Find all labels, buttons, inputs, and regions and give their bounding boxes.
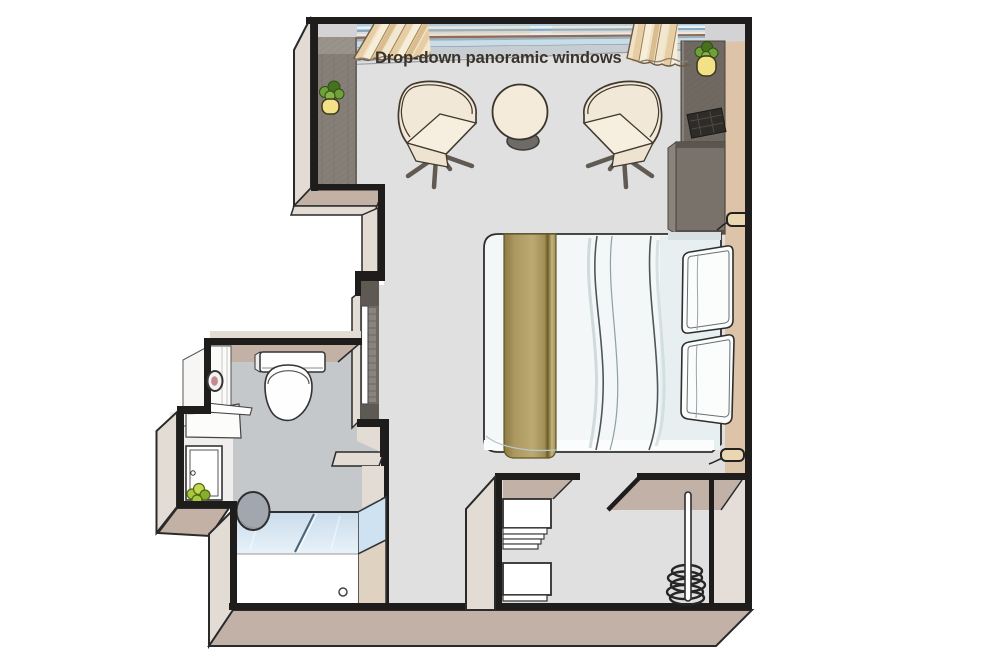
svg-text:Drop-down panoramic windows: Drop-down panoramic windows	[375, 49, 622, 67]
